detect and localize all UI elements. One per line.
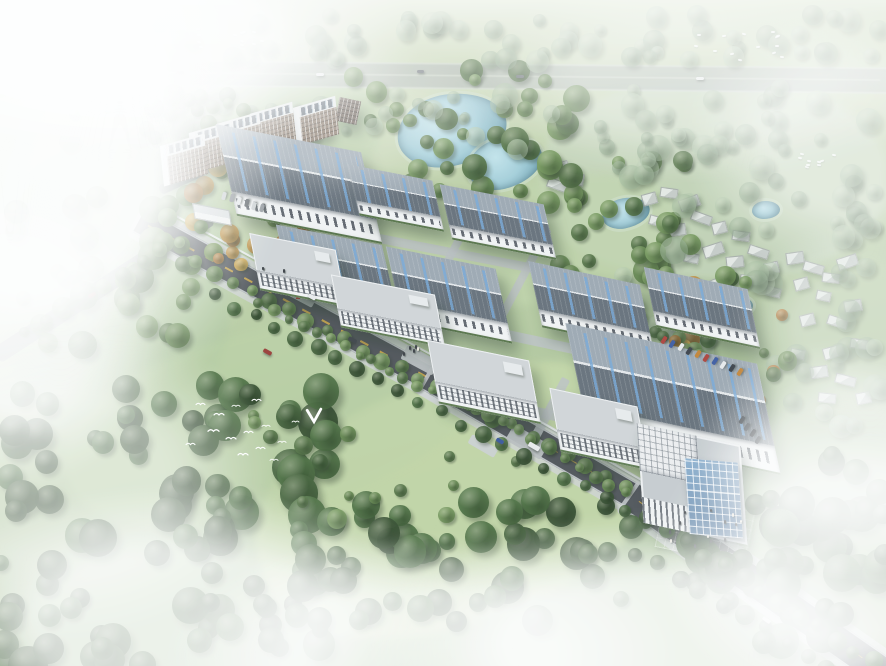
aerial-rendering: Aerial rendering of an industrial park c… [0, 0, 886, 666]
atmosphere-tint [0, 0, 886, 666]
fog-layer [0, 0, 886, 666]
